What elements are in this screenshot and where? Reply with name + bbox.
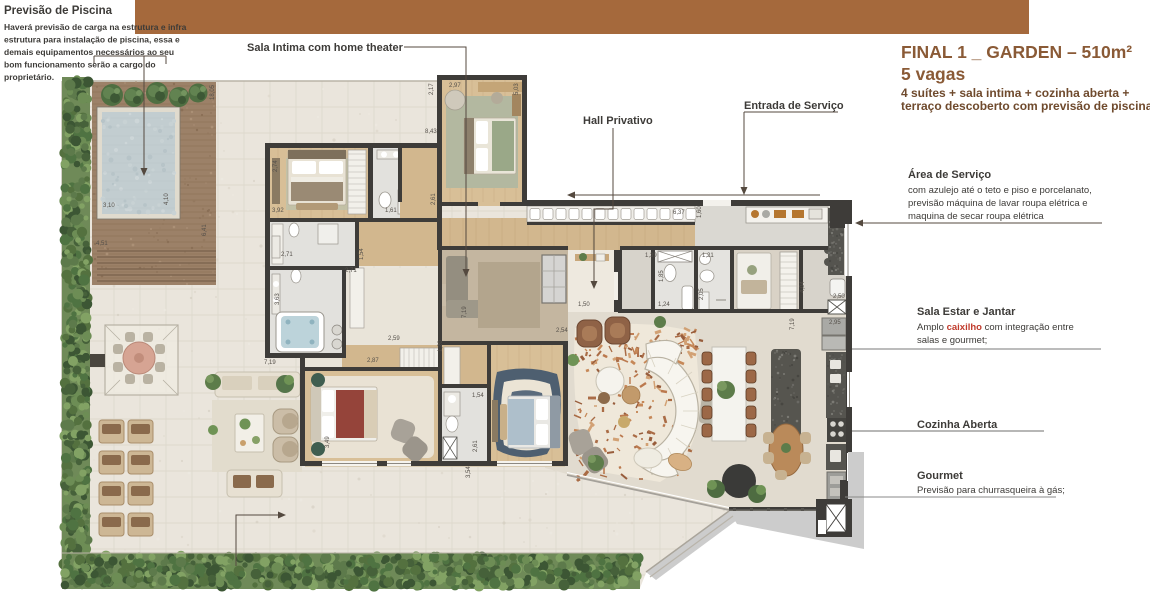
- svg-text:terraço descoberto com previsã: terraço descoberto com previsão de pisci…: [901, 99, 1150, 113]
- svg-text:demais equipamentos necessário: demais equipamentos necessários ao seu: [4, 47, 174, 57]
- svg-text:Amplo caixilho com integração: Amplo caixilho com integração entre: [917, 322, 1074, 333]
- svg-text:2,71: 2,71: [345, 268, 357, 274]
- svg-text:1,20: 1,20: [438, 340, 444, 352]
- svg-text:bom funcionamento serão a carg: bom funcionamento serão a cargo do: [4, 60, 156, 70]
- svg-text:2,61: 2,61: [473, 440, 479, 452]
- svg-text:com azulejo até o teto e piso: com azulejo até o teto e piso e porcelan…: [908, 185, 1092, 196]
- svg-text:1,39: 1,39: [645, 253, 657, 259]
- svg-text:1,85: 1,85: [659, 270, 665, 282]
- svg-text:1,24: 1,24: [658, 302, 670, 308]
- svg-text:4,51: 4,51: [96, 241, 108, 247]
- svg-text:6,37: 6,37: [673, 210, 685, 216]
- svg-text:4 suítes + sala intima + cozin: 4 suítes + sala intima + cozinha aberta …: [901, 86, 1129, 100]
- svg-text:proprietário.: proprietário.: [4, 72, 54, 82]
- svg-text:8,43: 8,43: [425, 129, 437, 135]
- svg-text:2,87: 2,87: [367, 358, 379, 364]
- svg-text:2,71: 2,71: [281, 252, 293, 258]
- svg-text:Área de Serviço: Área de Serviço: [908, 168, 991, 181]
- svg-text:previsão máquina de lavar roup: previsão máquina de lavar roupa elétrica…: [908, 198, 1088, 209]
- svg-text:Previsão para churrasqueira à: Previsão para churrasqueira à gás;: [917, 485, 1065, 496]
- svg-text:18,05: 18,05: [210, 84, 216, 100]
- svg-text:Haverá previsão de carga na es: Haverá previsão de carga na estrutura e …: [4, 22, 187, 32]
- svg-text:estrutura para instalação de p: estrutura para instalação de piscina, es…: [4, 35, 180, 45]
- svg-text:2,05: 2,05: [699, 288, 705, 300]
- svg-text:Entrada de Serviço: Entrada de Serviço: [744, 100, 844, 112]
- svg-text:Gourmet: Gourmet: [917, 470, 963, 482]
- svg-text:2,74: 2,74: [273, 160, 279, 172]
- svg-text:Hall Privativo: Hall Privativo: [583, 115, 653, 127]
- svg-text:4,10: 4,10: [164, 193, 170, 205]
- svg-text:4,04: 4,04: [800, 281, 806, 293]
- svg-text:2,50: 2,50: [833, 294, 845, 300]
- svg-text:2,97: 2,97: [449, 83, 461, 89]
- svg-text:Cozinha Aberta: Cozinha Aberta: [917, 419, 998, 431]
- svg-text:3,49: 3,49: [325, 436, 331, 448]
- svg-text:1,60: 1,60: [697, 206, 703, 218]
- svg-text:1,21: 1,21: [702, 253, 714, 259]
- svg-text:salas e gourmet;: salas e gourmet;: [917, 335, 987, 346]
- svg-text:7,19: 7,19: [264, 360, 276, 366]
- svg-text:3,54: 3,54: [466, 466, 472, 478]
- svg-text:2,54: 2,54: [556, 328, 568, 334]
- svg-text:Sala Intima com home theater: Sala Intima com home theater: [247, 42, 404, 54]
- svg-text:6,41: 6,41: [202, 224, 208, 236]
- svg-text:FINAL 1 _ GARDEN – 510m²: FINAL 1 _ GARDEN – 510m²: [901, 42, 1132, 62]
- svg-text:Previsão de Piscina: Previsão de Piscina: [4, 5, 113, 17]
- svg-text:1,50: 1,50: [578, 302, 590, 308]
- svg-text:1,54: 1,54: [359, 248, 365, 260]
- svg-text:5,03: 5,03: [514, 83, 520, 95]
- svg-text:2,95: 2,95: [829, 320, 841, 326]
- svg-text:5 vagas: 5 vagas: [901, 64, 965, 84]
- svg-text:3,92: 3,92: [272, 208, 284, 214]
- svg-text:3,63: 3,63: [275, 293, 281, 305]
- svg-text:2,59: 2,59: [388, 336, 400, 342]
- svg-text:Sala Estar e Jantar: Sala Estar e Jantar: [917, 306, 1016, 318]
- svg-text:maquina de secar roupa elétric: maquina de secar roupa elétrica: [908, 211, 1044, 222]
- svg-text:1,61: 1,61: [385, 208, 397, 214]
- svg-text:7,19: 7,19: [462, 306, 468, 318]
- svg-text:2,61: 2,61: [431, 193, 437, 205]
- svg-text:3,10: 3,10: [103, 203, 115, 209]
- svg-text:1,54: 1,54: [472, 393, 484, 399]
- svg-text:2,17: 2,17: [429, 83, 435, 95]
- svg-text:7,19: 7,19: [790, 318, 796, 330]
